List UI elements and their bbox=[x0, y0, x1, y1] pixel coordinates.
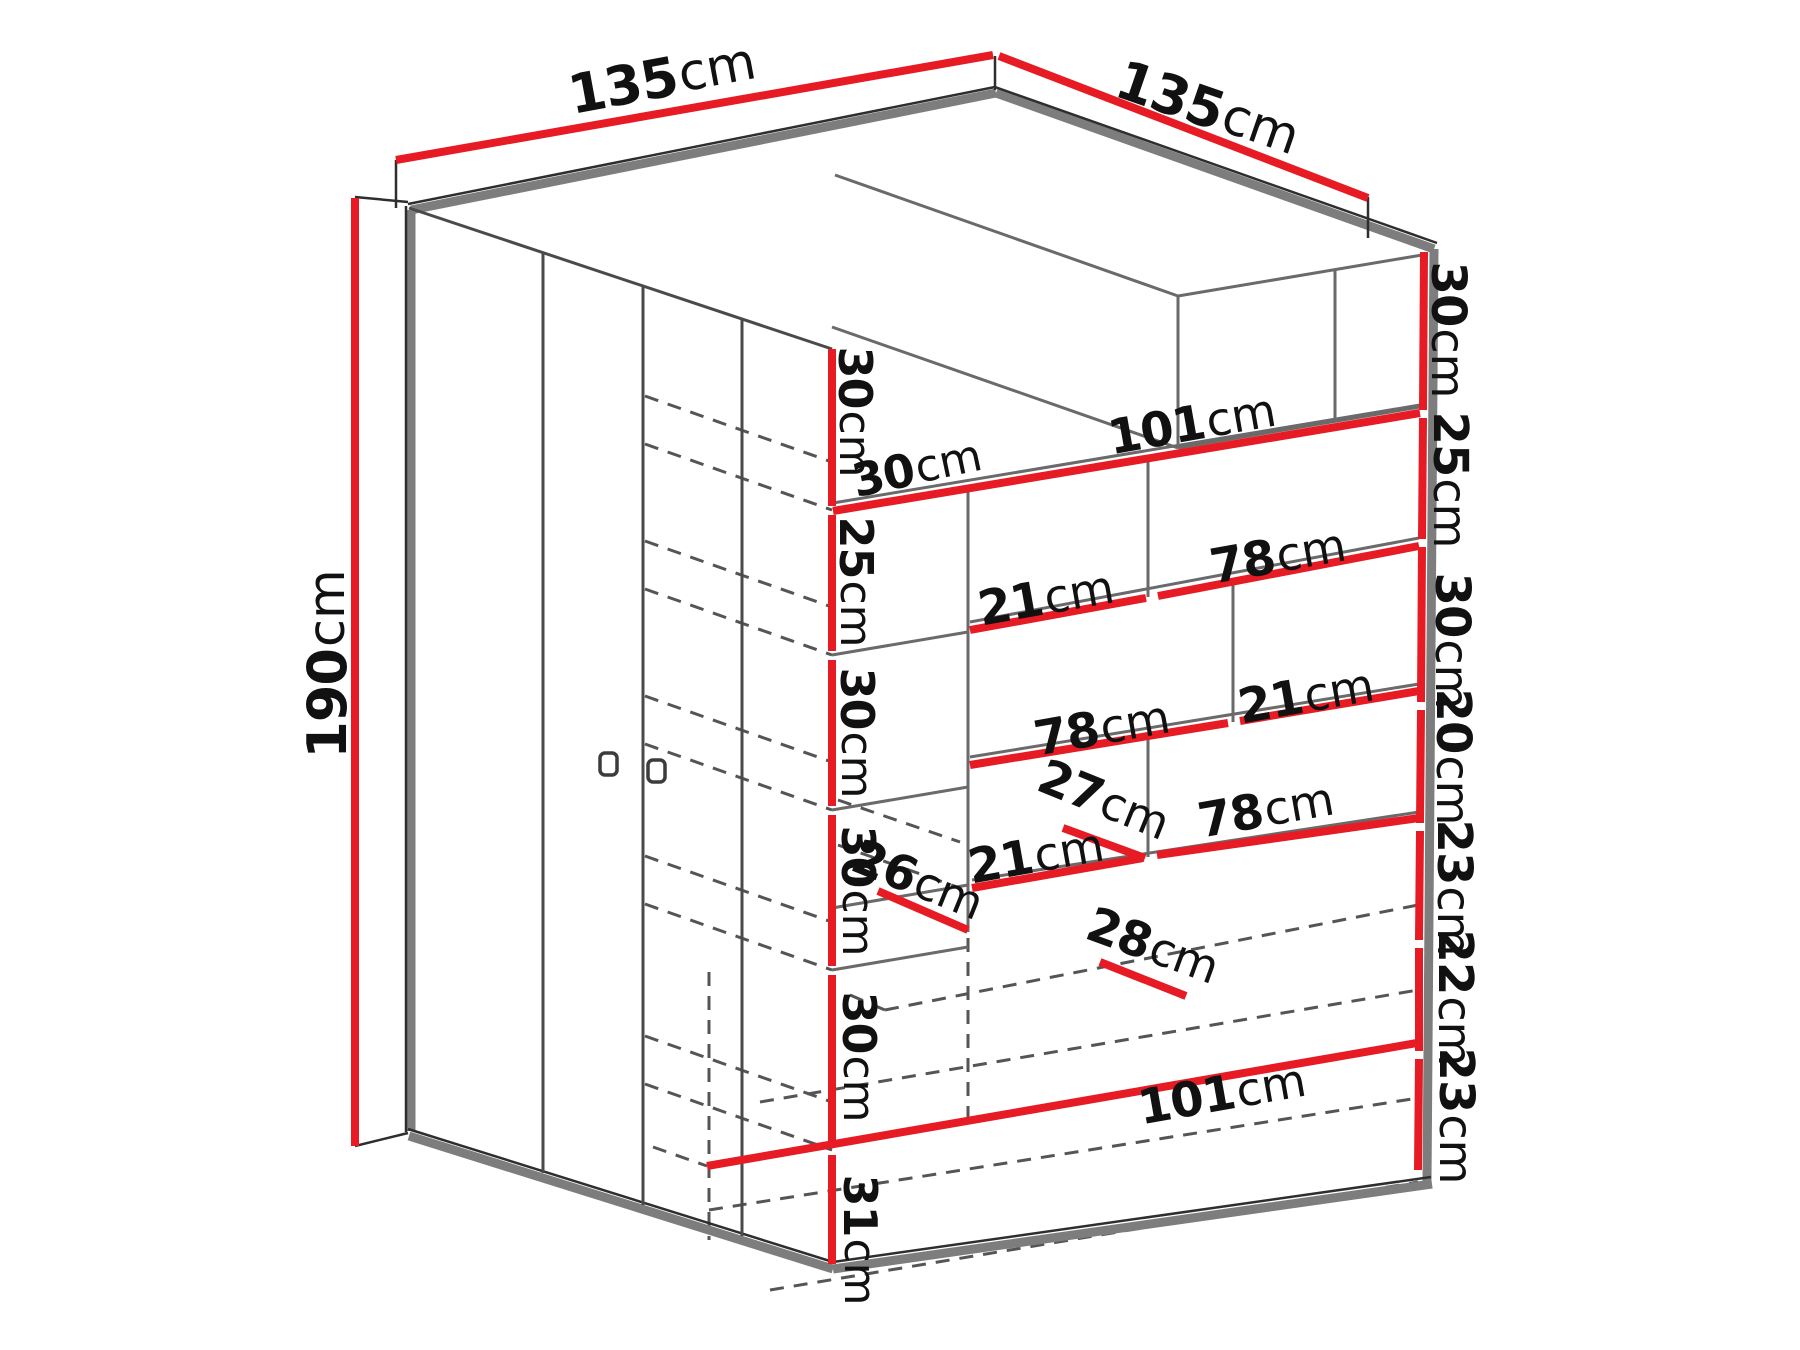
dim-label-inner-seg-30b: 30cm bbox=[830, 667, 884, 798]
dim-label-shelf2-78: 78cm bbox=[1206, 517, 1351, 596]
dim-label-right-seg-25: 25cm bbox=[1422, 412, 1478, 549]
wardrobe-dimension-diagram: 135cm135cm190cm30cm25cm30cm20cm23cm22cm2… bbox=[0, 0, 1800, 1350]
dim-label-bottom-101: 101cm bbox=[1134, 1052, 1310, 1137]
dim-label-shelf3-21: 21cm bbox=[1234, 657, 1379, 736]
door-top-edge bbox=[409, 208, 832, 349]
diagram-canvas: 135cm135cm190cm30cm25cm30cm20cm23cm22cm2… bbox=[0, 0, 1800, 1350]
dim-label-right-seg-30a: 30cm bbox=[1420, 262, 1476, 399]
dim-label-inner-seg-30d: 30cm bbox=[832, 991, 886, 1122]
dim-label-shelf4-78: 78cm bbox=[1194, 771, 1339, 850]
dimension-labels: 135cm135cm190cm30cm25cm30cm20cm23cm22cm2… bbox=[296, 30, 1485, 1306]
dim-label-inner-seg-31: 31cm bbox=[833, 1174, 887, 1305]
door-handle-left bbox=[600, 753, 617, 775]
dim-label-inner-seg-25: 25cm bbox=[829, 516, 883, 647]
dim-label-right-seg-23b: 23cm bbox=[1428, 1048, 1484, 1185]
dim-label-right-seg-20: 20cm bbox=[1425, 689, 1481, 826]
door-face bbox=[409, 208, 832, 1236]
dim-label-right-seg-22: 22cm bbox=[1427, 930, 1483, 1067]
dim-label-height-190: 190cm bbox=[296, 569, 359, 758]
dim-label-top-right-width: 135cm bbox=[1108, 47, 1308, 168]
dim-label-shelf2-21: 21cm bbox=[974, 559, 1119, 638]
dim-101-bottom bbox=[707, 1043, 1417, 1166]
door-handle-right bbox=[648, 760, 665, 782]
